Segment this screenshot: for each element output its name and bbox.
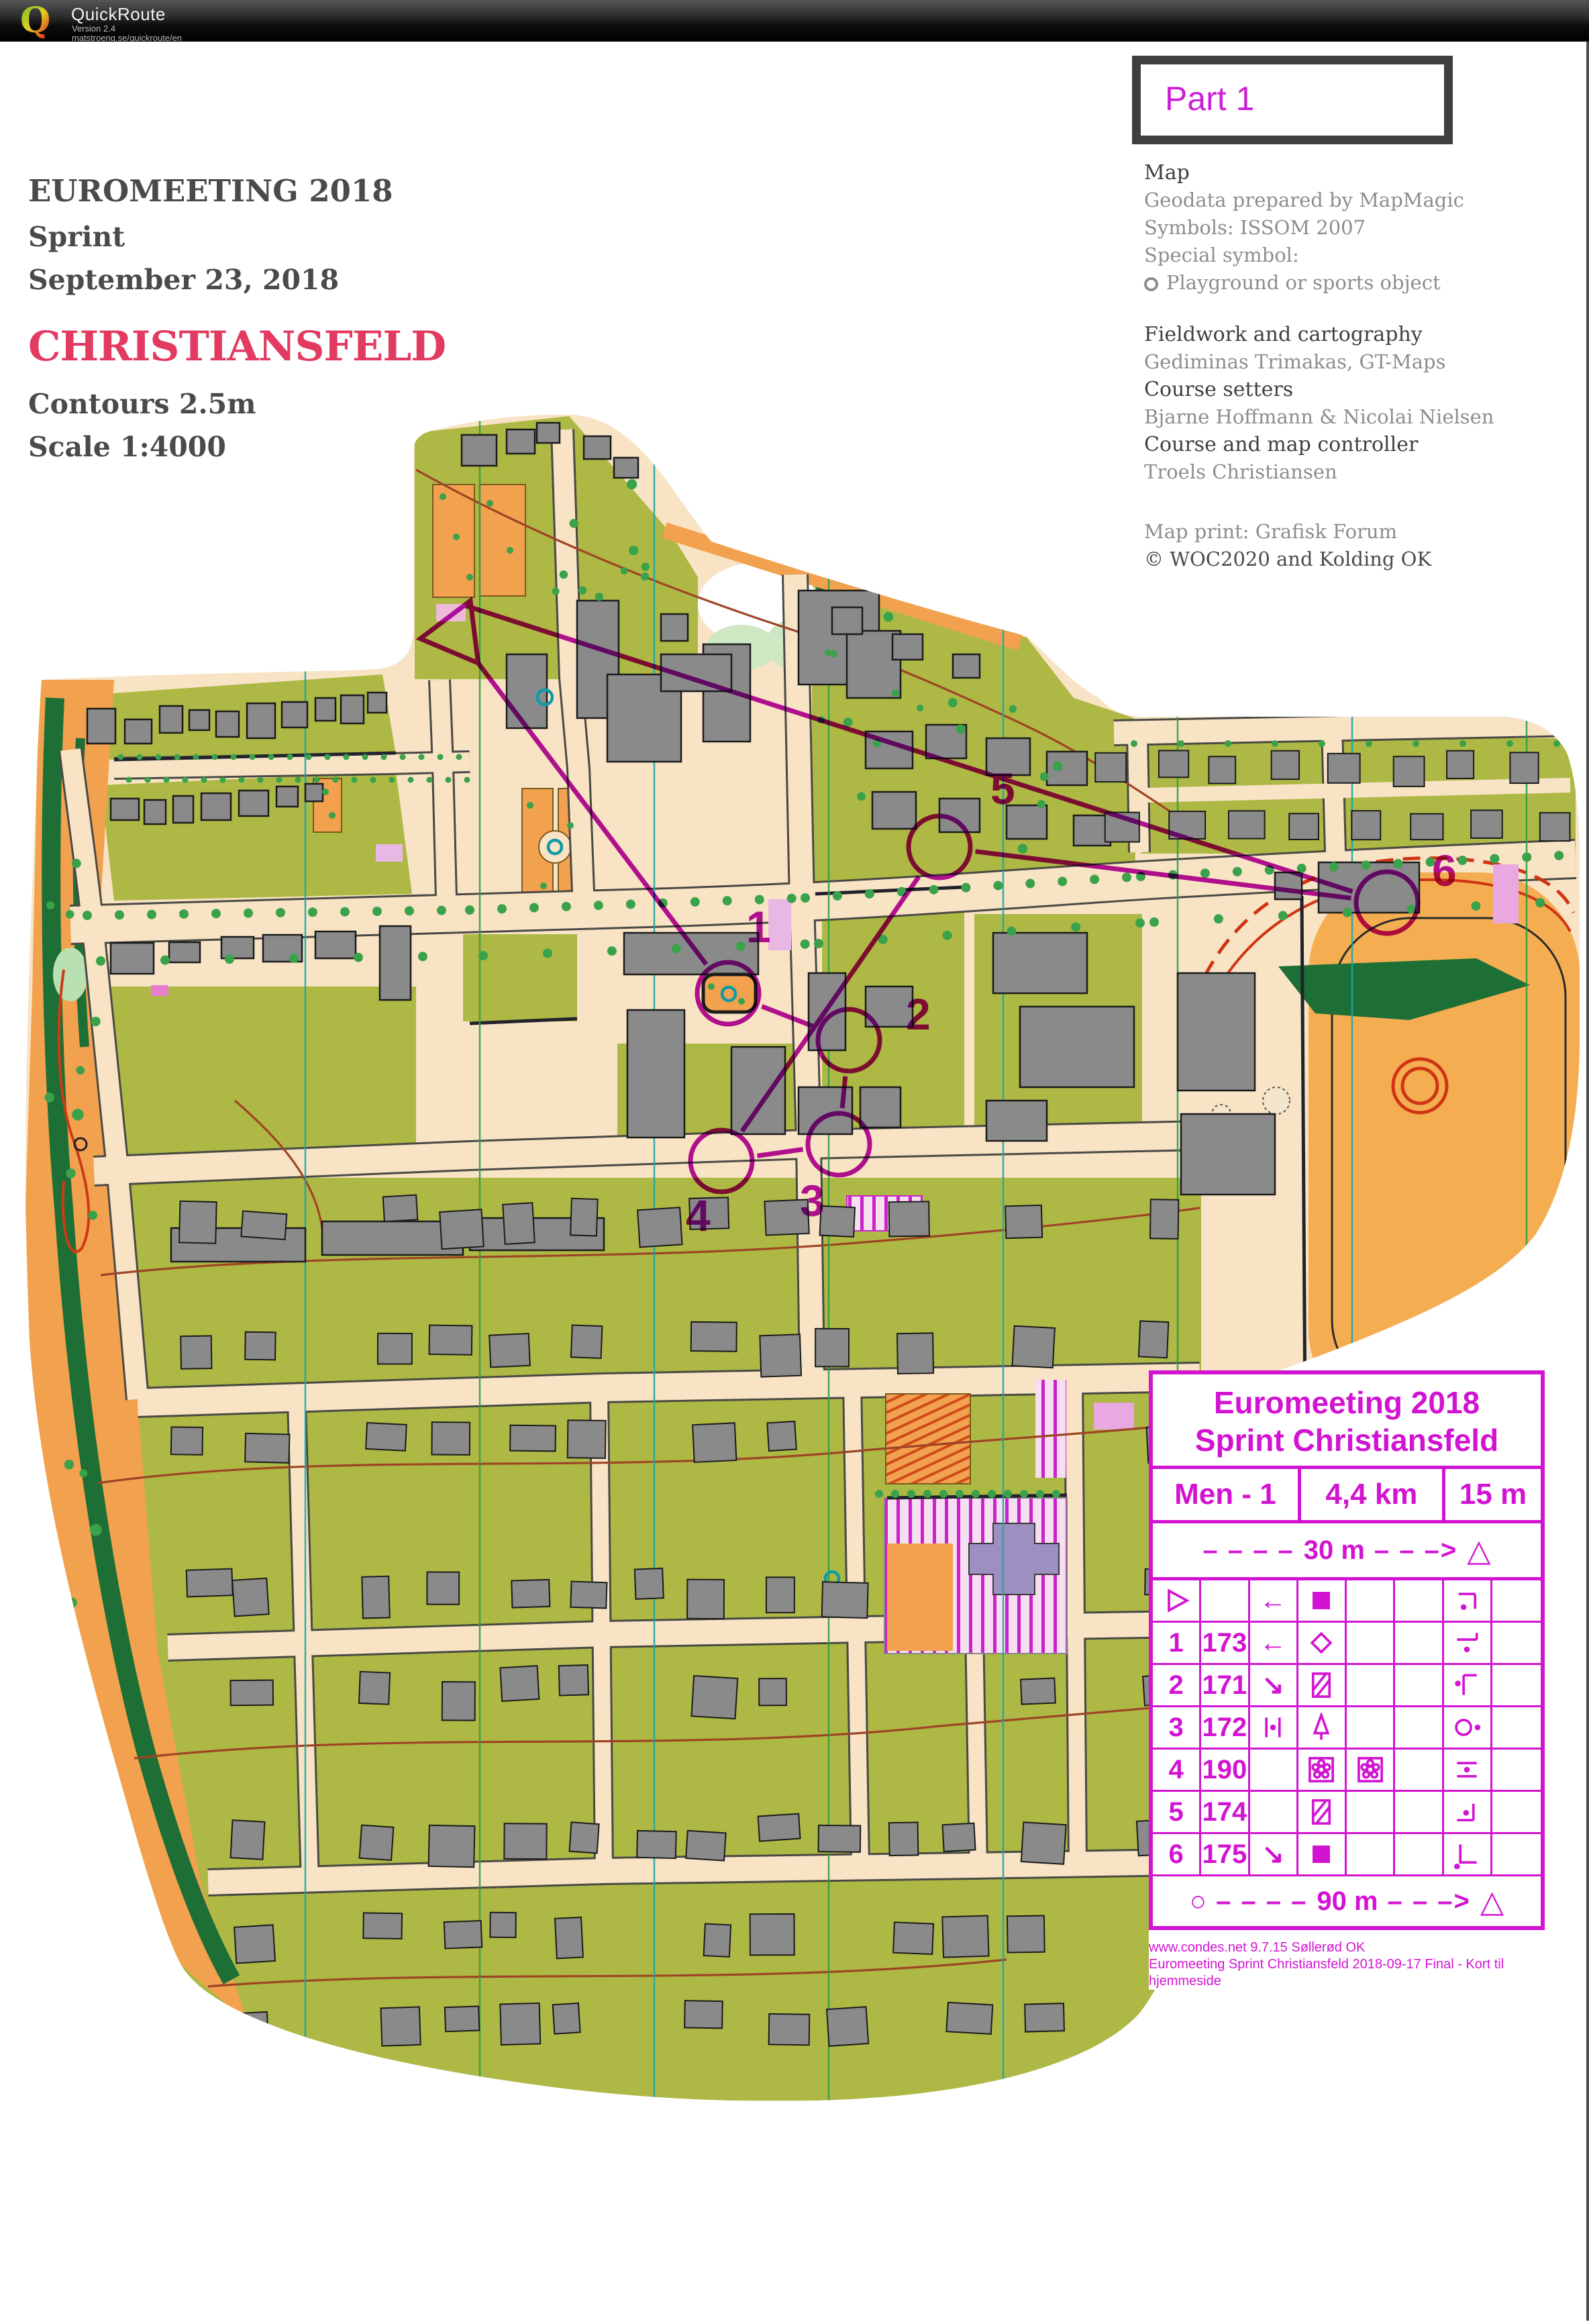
building: [819, 1825, 861, 1852]
tree-dot: [427, 777, 433, 783]
building: [553, 2003, 580, 2034]
tree-dot: [1272, 740, 1278, 747]
control-description-card: Euromeeting 2018 Sprint Christiansfeld M…: [1149, 1370, 1545, 1990]
building: [637, 1207, 682, 1247]
tree-dot: [1535, 898, 1545, 907]
building: [427, 1572, 459, 1605]
building: [440, 1209, 484, 1249]
control-symbol-cell: [1298, 1707, 1347, 1750]
tree-dot: [1178, 740, 1184, 747]
tree-dot: [389, 777, 395, 783]
building: [442, 1682, 475, 1721]
control-symbol-cell: [1298, 1792, 1347, 1834]
tree-dot: [552, 588, 560, 595]
map-title-block: EUROMEETING 2018 Sprint September 23, 20…: [28, 173, 446, 463]
building: [570, 1822, 599, 1853]
building: [570, 1582, 607, 1609]
control-number-cell: 6: [1153, 1834, 1201, 1876]
tree-dot: [381, 754, 387, 760]
building: [234, 1925, 275, 1963]
building: [429, 1325, 472, 1355]
tree-dot: [578, 587, 586, 595]
control-symbol-cell: [1444, 1665, 1492, 1707]
tree-dot: [408, 777, 414, 783]
page-edge-divider: [1586, 42, 1589, 2321]
control-symbol-cell: [1395, 1623, 1443, 1665]
control-symbol-cell: ↘: [1250, 1834, 1298, 1876]
tree-dot: [1278, 911, 1288, 920]
tree-dot: [1214, 914, 1223, 923]
control-number-label: 3: [800, 1176, 825, 1225]
credits-heading: Fieldwork and cartography: [1144, 323, 1560, 350]
credits-body: Gediminas Trimakas, GT-Maps: [1144, 350, 1560, 378]
tree-dot: [1009, 705, 1017, 713]
control-symbol-cell: [1492, 1665, 1541, 1707]
tree-dot: [993, 881, 1003, 891]
tree-dot: [72, 1109, 84, 1121]
control-symbol-cell: ←: [1250, 1623, 1298, 1665]
control-symbol-cell: [1298, 1623, 1347, 1665]
building: [490, 1913, 515, 1937]
control-symbol-cell: [1395, 1665, 1443, 1707]
control-symbol-cell: [1298, 1750, 1347, 1792]
tree-dot: [562, 902, 571, 911]
tree-dot: [453, 534, 460, 540]
control-symbol-cell: [1347, 1623, 1395, 1665]
tree-dot: [629, 546, 638, 555]
tree-dot: [527, 802, 533, 809]
building: [187, 1569, 233, 1597]
building: [637, 1831, 676, 1858]
tree-dot: [91, 1017, 100, 1026]
control-symbol-cell: [1347, 1707, 1395, 1750]
tree-dot: [419, 754, 425, 760]
building: [489, 1333, 530, 1367]
building: [686, 1831, 726, 1861]
app-version: Version 2.4: [72, 24, 182, 34]
start-distance-row: – – – – 30 m – – –>△: [1153, 1523, 1541, 1580]
building: [445, 2006, 480, 2031]
building: [431, 1422, 470, 1455]
building: [942, 1915, 988, 1957]
tree-dot: [1233, 867, 1242, 876]
tree-dot: [1366, 740, 1372, 747]
building: [504, 1823, 546, 1859]
tree-dot: [174, 754, 181, 760]
tree-dot: [884, 612, 894, 622]
building: [769, 2014, 810, 2045]
building: [171, 1427, 203, 1454]
tree-dot: [486, 500, 493, 507]
tree-dot: [276, 908, 285, 917]
building: [827, 2007, 868, 2046]
control-symbol-cell: [1492, 1580, 1541, 1623]
tree-dot: [642, 563, 650, 571]
tree-dot: [164, 777, 170, 783]
credits-print: Map print: Grafisk Forum: [1144, 520, 1560, 548]
tree-dot: [66, 1597, 77, 1608]
tree-dot: [929, 885, 939, 895]
building: [758, 1814, 801, 1841]
tree-dot: [1071, 922, 1080, 931]
control-number-label: 5: [990, 764, 1015, 813]
tree-dot: [340, 907, 350, 917]
control-number-label: 2: [906, 989, 931, 1039]
tree-dot: [308, 907, 317, 917]
tree-dot: [405, 906, 414, 915]
tree-dot: [314, 777, 320, 783]
control-symbol-cell: [1395, 1750, 1443, 1792]
building: [1150, 1199, 1178, 1239]
control-code-cell: 174: [1201, 1792, 1249, 1834]
tree-dot: [352, 777, 358, 783]
building: [820, 1206, 855, 1237]
building: [500, 1666, 539, 1701]
tree-dot: [1052, 1490, 1060, 1498]
tree-dot: [244, 909, 253, 918]
building: [231, 1820, 265, 1860]
control-symbol-cell: [1444, 1580, 1492, 1623]
tree-dot: [145, 777, 151, 783]
building: [1447, 751, 1474, 778]
tree-dot: [1490, 854, 1499, 864]
tree-dot: [1329, 862, 1339, 872]
control-symbol-cell: [1250, 1707, 1298, 1750]
tree-dot: [641, 572, 649, 580]
control-code-cell: 173: [1201, 1623, 1249, 1665]
control-code-cell: [1201, 1580, 1249, 1623]
tree-dot: [672, 944, 681, 954]
credits-line: Symbols: ISSOM 2007: [1144, 216, 1560, 244]
tree-dot: [1058, 876, 1067, 886]
credits-line: Geodata prepared by MapMagic: [1144, 189, 1560, 216]
building: [889, 1823, 919, 1856]
tree-dot: [907, 1490, 915, 1498]
tree-dot: [231, 754, 237, 760]
tree-dot: [76, 1066, 85, 1074]
course-climb: 15 m: [1445, 1469, 1541, 1520]
tree-dot: [88, 1211, 97, 1220]
building: [366, 1423, 407, 1451]
tree-dot: [1413, 740, 1419, 747]
tree-dot: [529, 903, 539, 913]
building: [1209, 756, 1235, 783]
map-scale: Scale 1:4000: [28, 431, 446, 463]
tree-dot: [1394, 859, 1403, 868]
tree-dot: [875, 1490, 883, 1498]
tree-dot: [276, 777, 283, 783]
building: [555, 1917, 583, 1958]
tree-dot: [201, 777, 207, 783]
tree-dot: [220, 777, 226, 783]
control-number-cell: 1: [1153, 1623, 1201, 1665]
control-number-cell: 4: [1153, 1750, 1201, 1792]
tree-dot: [1457, 856, 1467, 865]
tree-dot: [540, 882, 547, 889]
tree-dot: [801, 893, 810, 903]
building: [378, 1333, 412, 1364]
tree-dot: [211, 909, 221, 918]
credits-copyright: © WOC2020 and Kolding OK: [1144, 548, 1560, 575]
control-symbol-cell: [1444, 1707, 1492, 1750]
tree-dot: [465, 905, 474, 915]
course-length: 4,4 km: [1301, 1469, 1445, 1520]
tree-dot: [46, 901, 54, 909]
tree-dot: [690, 897, 700, 907]
card-title: Euromeeting 2018 Sprint Christiansfeld: [1153, 1374, 1541, 1469]
building: [815, 1329, 849, 1367]
building: [383, 1195, 418, 1222]
tree-dot: [1037, 800, 1045, 808]
building: [363, 1913, 402, 1939]
control-symbol-cell: [1298, 1580, 1347, 1623]
tree-dot: [66, 910, 74, 919]
tree-dot: [570, 519, 578, 527]
tree-dot: [1025, 879, 1035, 889]
control-grid: ←1173←2171↘3172419051746175↘: [1153, 1580, 1541, 1876]
tree-dot: [626, 899, 635, 909]
app-header: Q QuickRoute Version 2.4 matstroeng.se/q…: [0, 0, 1589, 42]
tree-dot: [1225, 740, 1231, 747]
tree-dot: [183, 777, 189, 783]
building: [1351, 811, 1380, 840]
credits-heading: Course setters: [1144, 378, 1560, 405]
control-code-cell: 190: [1201, 1750, 1249, 1792]
building: [1394, 756, 1425, 787]
building: [1510, 752, 1538, 783]
control-symbol-cell: [1444, 1834, 1492, 1876]
control-number-cell: [1153, 1580, 1201, 1623]
control-symbol-cell: [1444, 1750, 1492, 1792]
tree-dot: [258, 777, 264, 783]
building: [1025, 2003, 1064, 2031]
tree-dot: [831, 650, 837, 657]
tree-dot: [787, 894, 797, 903]
building: [179, 1201, 217, 1244]
building: [570, 1199, 598, 1236]
tree-dot: [64, 1460, 74, 1470]
tree-dot: [1149, 917, 1159, 927]
tree-dot: [437, 906, 446, 915]
tree-dot: [126, 777, 132, 783]
tree-dot: [892, 690, 899, 697]
tree-dot: [322, 789, 329, 795]
building: [1021, 1822, 1066, 1864]
tree-dot: [147, 910, 156, 919]
tree-dot: [1090, 874, 1099, 884]
tree-dot: [1122, 872, 1131, 882]
building: [822, 1582, 868, 1618]
tree-dot: [972, 1490, 980, 1498]
tree-dot: [723, 896, 732, 905]
tree-dot: [560, 570, 568, 578]
building: [571, 1325, 602, 1358]
tree-dot: [1522, 852, 1531, 862]
control-number-label: 4: [686, 1191, 711, 1240]
building: [691, 1322, 737, 1352]
credits-block: Map Geodata prepared by MapMagic Symbols…: [1144, 161, 1560, 575]
course-name: Men - 1: [1153, 1469, 1301, 1520]
building: [897, 1333, 933, 1374]
control-code-cell: 172: [1201, 1707, 1249, 1750]
building: [1139, 1321, 1168, 1358]
building: [767, 1421, 796, 1451]
control-number-label: 1: [746, 902, 771, 952]
tree-dot: [400, 754, 406, 760]
control-symbol-cell: [1347, 1665, 1395, 1707]
tree-dot: [418, 952, 427, 961]
part-label-box: Part 1: [1132, 56, 1453, 144]
tree-dot: [45, 1093, 55, 1103]
tree-dot: [1554, 851, 1564, 860]
tree-dot: [594, 901, 603, 910]
control-symbol-cell: ←: [1250, 1580, 1298, 1623]
building: [444, 1921, 482, 1948]
tree-dot: [923, 1490, 931, 1498]
building: [946, 2003, 992, 2034]
tree-dot: [295, 777, 301, 783]
tree-dot: [289, 954, 299, 963]
building: [893, 1922, 933, 1954]
building: [635, 1568, 664, 1599]
control-symbol-cell: [1395, 1834, 1443, 1876]
tree-dot: [306, 754, 312, 760]
building: [759, 1678, 786, 1705]
building: [568, 1420, 606, 1458]
tree-dot: [83, 911, 92, 920]
building: [1289, 813, 1319, 840]
quickroute-logo-icon: Q: [17, 3, 56, 40]
card-footnotes: www.condes.net 9.7.15 Søllerød OK Eurome…: [1149, 1939, 1545, 1990]
control-symbol-cell: [1347, 1834, 1395, 1876]
credits-body: Bjarne Hoffmann & Nicolai Nielsen: [1144, 405, 1560, 433]
control-symbol-cell: [1444, 1623, 1492, 1665]
building: [1272, 751, 1299, 779]
control-number-cell: 5: [1153, 1792, 1201, 1834]
tree-dot: [96, 956, 105, 966]
event-discipline: Sprint: [28, 221, 446, 253]
svg-text:Q: Q: [20, 3, 50, 40]
building: [230, 1680, 273, 1706]
tree-dot: [1506, 740, 1513, 747]
tree-dot: [1040, 772, 1049, 781]
building: [687, 1580, 724, 1619]
tree-dot: [115, 910, 124, 919]
tree-dot: [1135, 918, 1145, 927]
tree-dot: [627, 479, 637, 489]
building: [234, 2012, 268, 2043]
tree-dot: [268, 754, 274, 760]
tree-dot: [239, 777, 245, 783]
tree-dot: [1053, 761, 1063, 771]
building: [360, 1825, 394, 1860]
credits-map-heading: Map: [1144, 161, 1560, 189]
building: [429, 1825, 475, 1867]
building: [1159, 750, 1188, 777]
tree-dot: [212, 754, 218, 760]
building: [380, 2007, 420, 2046]
part-label: Part 1: [1165, 79, 1254, 118]
tree-dot: [446, 777, 452, 783]
tree-dot: [1459, 740, 1466, 747]
tree-dot: [287, 754, 293, 760]
tree-dot: [464, 777, 470, 783]
building: [693, 1423, 736, 1462]
tree-dot: [814, 939, 823, 948]
tree-dot: [825, 649, 831, 656]
tree-dot: [1471, 901, 1480, 911]
tree-dot: [1319, 740, 1325, 747]
tree-dot: [362, 754, 368, 760]
control-symbol-cell: [1250, 1792, 1298, 1834]
tree-dot: [466, 574, 473, 580]
tree-dot: [948, 698, 958, 707]
building: [766, 1577, 794, 1613]
tree-dot: [478, 951, 488, 960]
tree-dot: [956, 1490, 964, 1498]
building: [750, 1914, 794, 1955]
building: [1021, 1678, 1056, 1705]
tree-dot: [1131, 740, 1137, 747]
control-number-cell: 2: [1153, 1665, 1201, 1707]
contour-interval: Contours 2.5m: [28, 388, 446, 420]
building: [889, 1201, 929, 1236]
tree-dot: [595, 593, 603, 601]
building: [1013, 1326, 1055, 1368]
building: [510, 1425, 556, 1452]
tree-dot: [621, 567, 628, 574]
building: [1411, 814, 1443, 840]
control-symbol-cell: [1444, 1792, 1492, 1834]
control-symbol-cell: ↘: [1250, 1665, 1298, 1707]
control-symbol-cell: [1492, 1792, 1541, 1834]
building: [1471, 810, 1502, 838]
tree-dot: [66, 1168, 75, 1178]
course-leg-line: [842, 1076, 845, 1109]
control-code-cell: 171: [1201, 1665, 1249, 1707]
control-symbol-cell: [1492, 1834, 1541, 1876]
tree-dot: [736, 942, 746, 951]
building: [691, 1676, 737, 1719]
app-url[interactable]: matstroeng.se/quickroute/en: [72, 34, 182, 43]
tree-dot: [1343, 908, 1352, 917]
tree-dot: [1200, 868, 1210, 878]
tree-dot: [833, 891, 842, 901]
tree-dot: [1004, 1490, 1012, 1498]
credits-heading: Course and map controller: [1144, 433, 1560, 460]
tree-dot: [370, 777, 376, 783]
tree-dot: [440, 493, 446, 500]
tree-dot: [891, 1490, 899, 1498]
building: [500, 2003, 540, 2045]
tree-dot: [325, 754, 331, 760]
card-course-info: Men - 1 4,4 km 15 m: [1153, 1469, 1541, 1523]
control-symbol-cell: [1492, 1623, 1541, 1665]
tree-dot: [857, 792, 866, 801]
tree-dot: [160, 956, 170, 965]
building: [559, 1665, 588, 1695]
tree-dot: [738, 998, 745, 1005]
tree-dot: [543, 949, 552, 958]
tree-dot: [988, 1490, 996, 1498]
tree-dot: [79, 1469, 87, 1477]
building: [359, 1672, 390, 1705]
tree-dot: [801, 940, 810, 949]
tree-dot: [939, 1490, 947, 1498]
tree-dot: [917, 705, 923, 711]
tree-dot: [179, 909, 189, 919]
building: [1328, 754, 1360, 783]
